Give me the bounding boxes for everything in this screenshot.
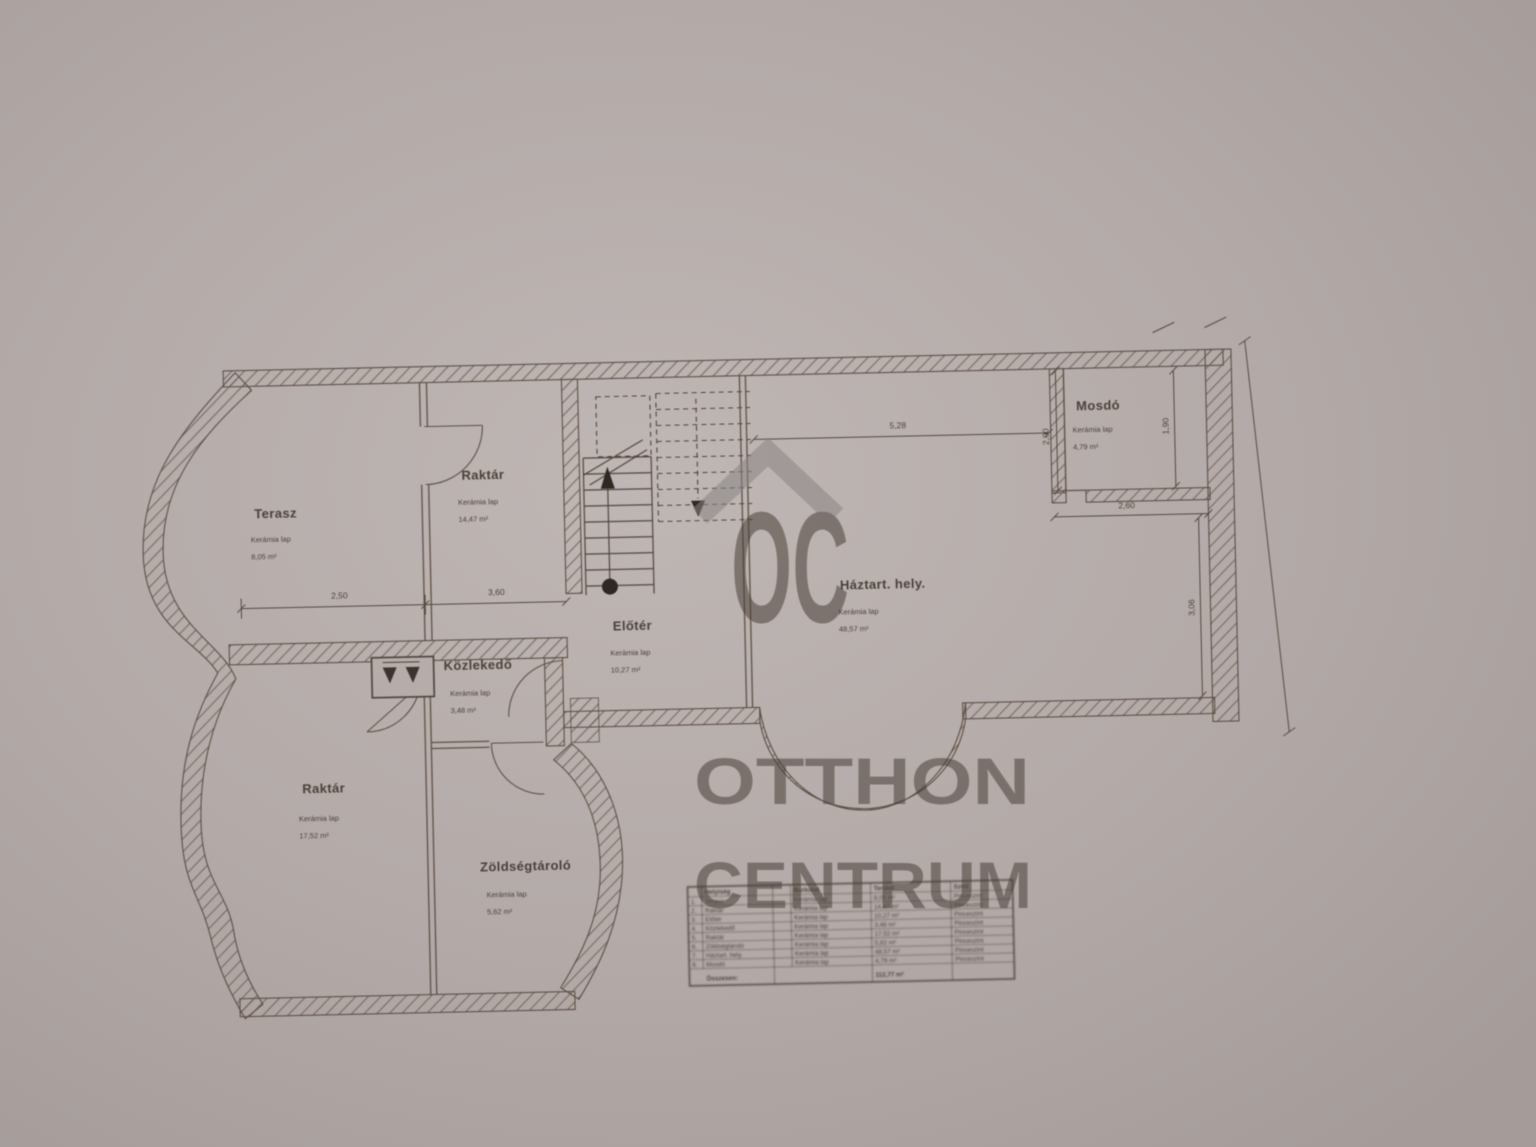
svg-text:Raktár: Raktár — [302, 780, 345, 796]
svg-text:5,62 m²: 5,62 m² — [875, 939, 897, 946]
dim-mosdo-depth: 1,90 — [1160, 418, 1170, 435]
svg-text:Háztart. hely.: Háztart. hely. — [706, 952, 743, 960]
svg-text:4,79 m²: 4,79 m² — [1073, 442, 1099, 452]
wall-mosdo-bottom-a — [1052, 491, 1066, 503]
scanned-floorplan-page: 2,50 3,60 5,28 2,60 2,00 1,90 3,06 Teras… — [0, 0, 1536, 1147]
svg-text:Zöldségtároló: Zöldségtároló — [706, 943, 745, 951]
floorplan-drawing: 2,50 3,60 5,28 2,60 2,00 1,90 3,06 Teras… — [0, 0, 1536, 1147]
svg-text:Pinceszint: Pinceszint — [954, 929, 983, 937]
svg-text:10,27 m²: 10,27 m² — [611, 665, 641, 675]
watermark-line1: OTTHON — [694, 744, 1030, 818]
svg-text:Kerámia lap: Kerámia lap — [794, 923, 828, 931]
svg-text:8,05 m²: 8,05 m² — [251, 552, 277, 562]
svg-text:Pinceszint: Pinceszint — [955, 947, 984, 955]
watermark-line2: CENTRUM — [694, 848, 1032, 922]
svg-text:Kerámia lap: Kerámia lap — [299, 814, 339, 824]
svg-text:5.: 5. — [692, 935, 698, 942]
svg-text:Zöldségtároló: Zöldségtároló — [480, 858, 571, 875]
svg-text:Pinceszint: Pinceszint — [955, 956, 984, 964]
svg-text:5,62 m²: 5,62 m² — [487, 907, 513, 917]
svg-text:8.: 8. — [692, 962, 698, 969]
svg-text:14,47 m²: 14,47 m² — [458, 514, 488, 524]
svg-text:Mosdó: Mosdó — [706, 961, 726, 968]
svg-text:Mosdó: Mosdó — [1076, 397, 1120, 413]
svg-text:Közlekedő: Közlekedő — [443, 657, 512, 673]
svg-text:112,77 m²: 112,77 m² — [875, 971, 904, 979]
svg-text:Közlekedő: Közlekedő — [705, 925, 735, 933]
svg-text:Kerámia lap: Kerámia lap — [251, 535, 291, 545]
svg-text:Kerámia lap: Kerámia lap — [1073, 425, 1113, 435]
svg-text:7.: 7. — [692, 953, 698, 960]
wall-kozlekedo-right — [544, 658, 564, 746]
door-step-hatch — [570, 698, 599, 743]
dim-raktar-width: 3,60 — [488, 587, 505, 597]
svg-text:Kerámia lap: Kerámia lap — [795, 941, 829, 949]
svg-text:48,57 m²: 48,57 m² — [875, 948, 900, 956]
svg-text:Kerámia lap: Kerámia lap — [795, 950, 829, 958]
svg-text:Előtér: Előtér — [613, 618, 653, 634]
svg-text:6.: 6. — [692, 944, 698, 951]
dim-terasz-width: 2,50 — [331, 590, 348, 600]
svg-text:17,52 m²: 17,52 m² — [299, 831, 329, 841]
wall-mosdo-bottom-b — [1086, 487, 1210, 502]
svg-text:3,48 m²: 3,48 m² — [451, 706, 477, 716]
dim-mosdo-width: 2,60 — [1118, 500, 1135, 510]
dim-mosdo-wall: 2,00 — [1041, 428, 1051, 445]
svg-text:Kerámia lap: Kerámia lap — [487, 889, 527, 899]
dim-haztart-width: 5,28 — [889, 420, 906, 430]
svg-text:Kerámia lap: Kerámia lap — [450, 688, 490, 698]
svg-text:Raktár: Raktár — [461, 467, 504, 483]
svg-text:Kerámia lap: Kerámia lap — [458, 497, 498, 507]
svg-text:4.: 4. — [691, 926, 697, 933]
svg-text:Pinceszint: Pinceszint — [955, 938, 984, 946]
svg-text:17,52 m²: 17,52 m² — [875, 930, 900, 938]
svg-text:Raktár: Raktár — [706, 934, 725, 941]
svg-text:Háztart. hely.: Háztart. hely. — [840, 576, 926, 593]
vent-fixture — [371, 656, 434, 697]
svg-text:Kerámia lap: Kerámia lap — [795, 932, 829, 940]
svg-text:Kerámia lap: Kerámia lap — [795, 959, 829, 967]
svg-text:3,48 m²: 3,48 m² — [874, 921, 896, 928]
svg-text:Kerámia lap: Kerámia lap — [610, 648, 650, 658]
watermark-logo-letters: OC — [731, 480, 849, 656]
svg-text:4,79 m²: 4,79 m² — [875, 957, 897, 964]
dim-haztart-depth: 3,06 — [1186, 599, 1196, 616]
svg-text:Terasz: Terasz — [254, 505, 297, 521]
